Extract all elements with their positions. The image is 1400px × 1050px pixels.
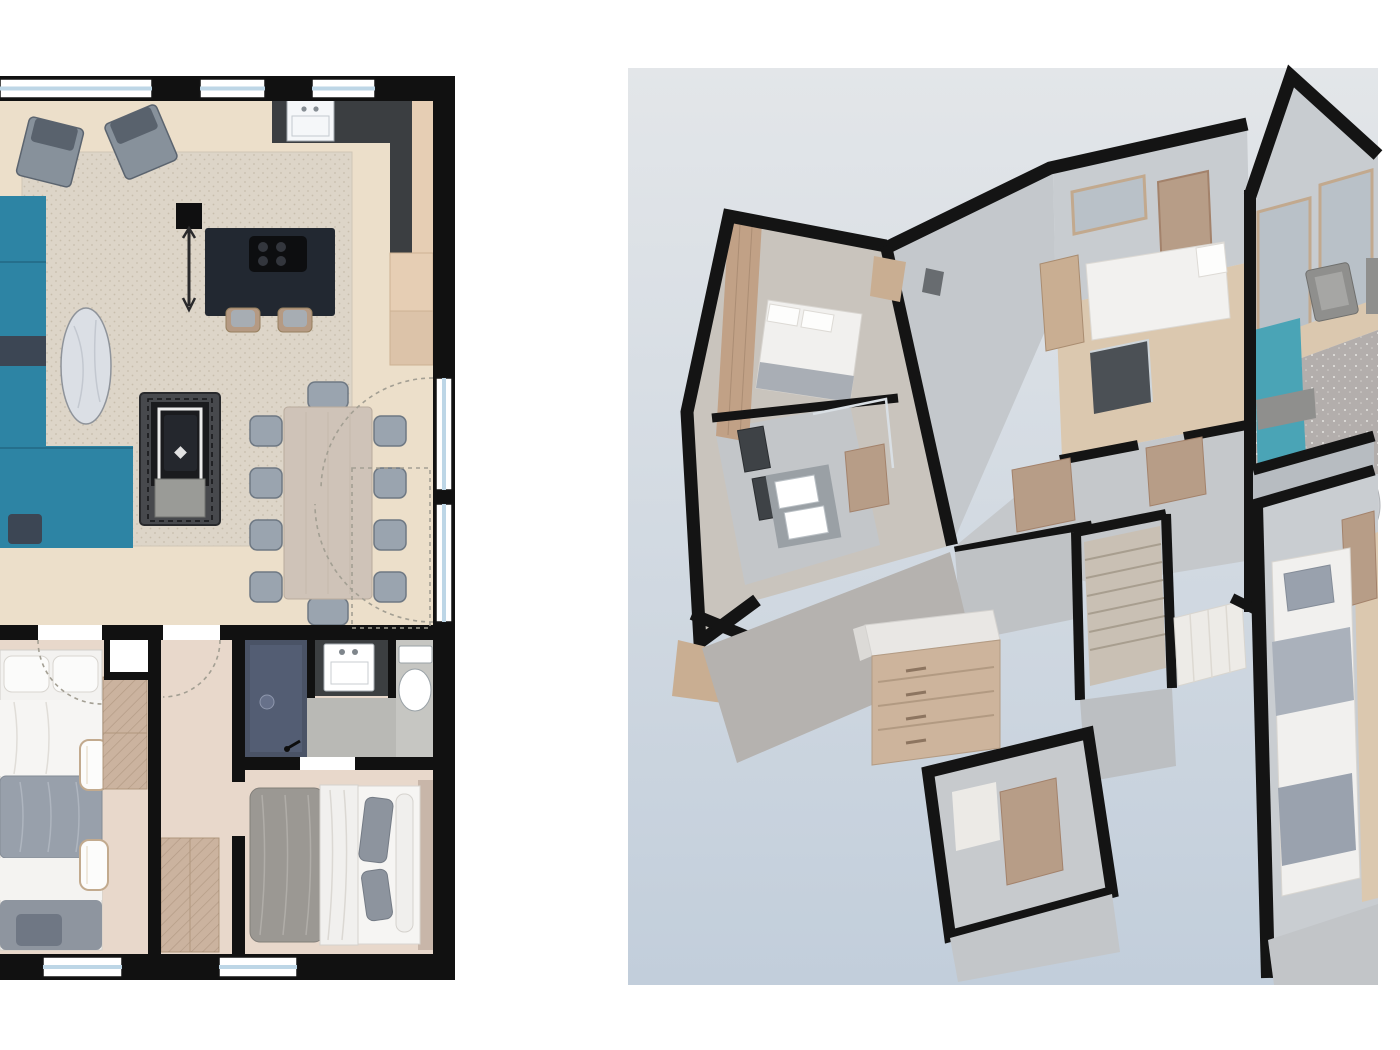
landing-floor [870, 256, 906, 302]
bathroom-vanity [315, 640, 388, 696]
bar-stool [226, 308, 260, 332]
bathroom [245, 640, 433, 757]
fireplace [140, 393, 220, 525]
wardrobe-3d [1040, 255, 1084, 351]
window-3d [1258, 198, 1310, 344]
door-3d [1146, 437, 1206, 506]
utility-room [928, 733, 1120, 982]
door-3d [845, 444, 889, 512]
window [0, 79, 152, 98]
window [312, 79, 375, 98]
wardrobe [103, 677, 147, 789]
desk-chair [80, 840, 108, 890]
shower-room [1090, 340, 1152, 414]
lower-bedroom [1253, 436, 1378, 985]
window [219, 957, 297, 977]
bunk-bed-3d [1272, 548, 1360, 896]
door-3d [1012, 458, 1075, 532]
window [436, 504, 452, 622]
kitchen-sink [287, 99, 334, 141]
chest-of-drawers [853, 610, 1000, 765]
window [436, 378, 452, 490]
window [200, 79, 265, 98]
door-3d [1000, 778, 1063, 885]
hallway-wardrobe [161, 838, 219, 952]
floorplan-comparison-page [0, 0, 1400, 1050]
toilet [399, 646, 432, 711]
master-bed [756, 300, 862, 402]
floorplans-canvas [0, 0, 1400, 1050]
bunk-bed [0, 650, 102, 950]
double-vanity [765, 464, 841, 548]
wall-niche [110, 640, 148, 673]
window [43, 957, 122, 977]
shower [245, 640, 307, 757]
bedroom-right [250, 780, 433, 950]
floorplan-3d [628, 68, 1388, 985]
double-bed [250, 785, 420, 945]
bar-stool [278, 308, 312, 332]
coffee-table [61, 308, 111, 424]
floorplan-2d [0, 76, 455, 980]
armchair-3d [1366, 258, 1378, 314]
tile-corner [952, 782, 1000, 851]
